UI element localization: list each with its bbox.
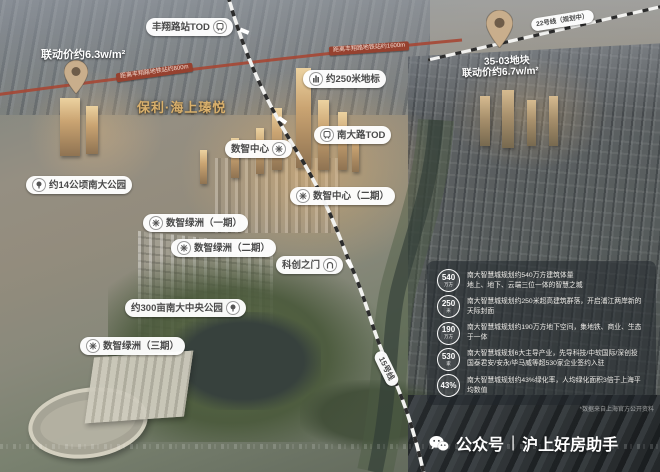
metro-line-22	[428, 6, 660, 60]
aerial-map: 联动价约6.3w/m² 保利·海上瑧悦 35-03地块 联动价约6.7w/m² …	[0, 0, 660, 472]
stat-text: 南大智慧城规划约250米超高建筑群落，开启浦江两岸新的天际封面	[467, 297, 646, 317]
wechat-footer: 公众号 | 沪上好房助手	[429, 431, 618, 455]
linkage-price-left: 联动价约6.3w/m²	[41, 46, 125, 62]
label-shuzhi-center: 数智中心	[225, 140, 292, 158]
label-nandalu-tod: 南大路TOD	[314, 126, 391, 144]
smart-icon	[272, 142, 286, 156]
wechat-label: 公众号	[456, 431, 504, 455]
label-kechuang-gate: 科创之门	[276, 256, 343, 274]
label-oasis-3: 数智绿洲（三期）	[80, 337, 185, 355]
metro-icon	[320, 128, 334, 142]
stat-ring-43pct: 43%	[437, 374, 460, 397]
stat-text: 南大智慧城规划约190万方地下空间，集地铁、商业、生态于一体	[467, 323, 646, 343]
stat-row-190: 190 万方 南大智慧城规划约190万方地下空间，集地铁、商业、生态于一体	[437, 322, 646, 345]
label-oasis-1: 数智绿洲（一期）	[143, 214, 248, 232]
wechat-icon	[429, 435, 449, 452]
label-central-park: 约300亩南大中央公园	[125, 299, 246, 317]
stat-ring-530: 530 家	[437, 348, 460, 371]
label-nanda-park: 约14公顷南大公园	[26, 176, 132, 194]
stat-text: 南大智慧城规划6大主导产业，先导科技/中软国际/深创投	[467, 349, 638, 359]
account-name: 沪上好房助手	[522, 431, 618, 455]
smart-icon	[177, 241, 191, 255]
stat-text: 南大智慧城规划约43%绿化率，人均绿化面积3倍于上海平均数值	[467, 376, 646, 396]
smart-icon	[86, 339, 100, 353]
label-fengxiang-station-tod: 丰翔路站TOD	[146, 18, 233, 36]
gate-icon	[323, 258, 337, 272]
tree-icon	[226, 301, 240, 315]
label-shuzhi-center-2: 数智中心（二期）	[290, 187, 395, 205]
data-source-footnote: *数据来自上海官方公开资料	[580, 404, 654, 413]
footer-divider: |	[511, 434, 515, 452]
stat-text: 国泰君安/安永/毕马威等超530家企业签约入驻	[467, 359, 638, 369]
linkage-price-right: 联动价约6.7w/m²	[462, 62, 539, 80]
location-pin-left	[64, 60, 88, 94]
label-250m-landmark: 约250米地标	[303, 70, 386, 88]
project-name: 保利·海上瑧悦	[137, 97, 226, 116]
location-pin-right	[486, 10, 513, 48]
smart-icon	[149, 216, 163, 230]
metro-icon	[213, 20, 227, 34]
building-icon	[309, 72, 323, 86]
stat-text: 南大智慧城规划约540万方建筑体量	[467, 271, 583, 281]
stats-panel: 540 万方 南大智慧城规划约540万方建筑体量 地上、地下、云端三位一体的智慧…	[427, 261, 656, 405]
stat-row-540: 540 万方 南大智慧城规划约540万方建筑体量 地上、地下、云端三位一体的智慧…	[437, 269, 646, 292]
stat-text: 地上、地下、云端三位一体的智慧之城	[467, 281, 583, 291]
tree-icon	[32, 178, 46, 192]
stat-ring-540: 540 万方	[437, 269, 460, 292]
label-oasis-2: 数智绿洲（二期）	[171, 239, 276, 257]
stat-ring-190: 190 万方	[437, 322, 460, 345]
stat-row-250: 250 米 南大智慧城规划约250米超高建筑群落，开启浦江两岸新的天际封面	[437, 295, 646, 318]
smart-icon	[296, 189, 310, 203]
stat-row-530: 530 家 南大智慧城规划6大主导产业，先导科技/中软国际/深创投 国泰君安/安…	[437, 348, 646, 371]
stat-ring-250: 250 米	[437, 295, 460, 318]
stat-row-43pct: 43% 南大智慧城规划约43%绿化率，人均绿化面积3倍于上海平均数值	[437, 374, 646, 397]
